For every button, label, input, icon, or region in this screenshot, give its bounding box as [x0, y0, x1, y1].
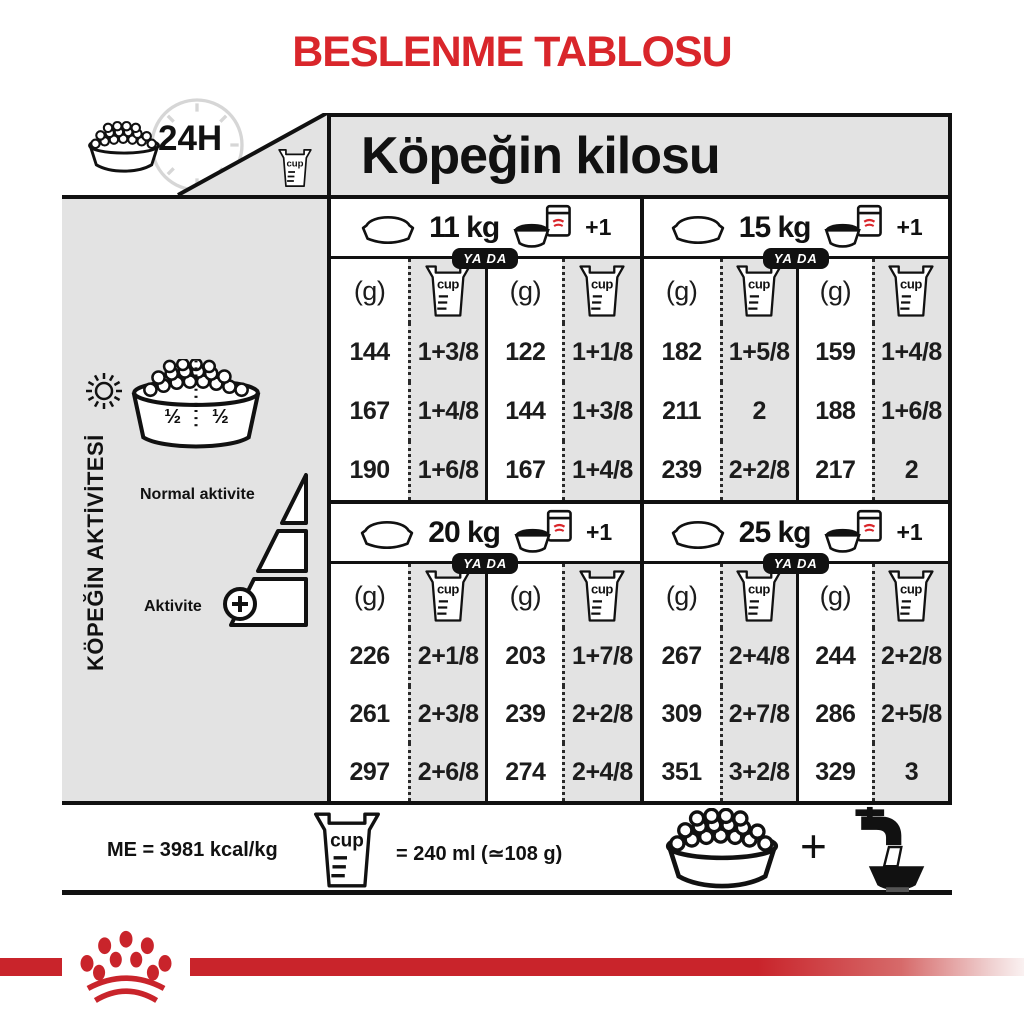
- cup-icon: [425, 264, 471, 318]
- section-header: 11 kg +1 YA DA: [331, 199, 640, 259]
- royal-canin-logo: [62, 925, 190, 1011]
- crown-logo-icon: [70, 929, 182, 1007]
- water-tap-icon: [844, 805, 930, 893]
- feeding-table-page: BESLENME TABLOSU 24H Köpeğin kilosu: [0, 0, 1024, 1024]
- weight-label: 11 kg: [429, 211, 499, 245]
- cup-icon: [736, 569, 782, 623]
- value-cell: 122: [485, 323, 562, 382]
- cup-icon: [278, 145, 312, 191]
- cup-icon: [312, 812, 382, 888]
- gram-unit-label: (g): [644, 564, 720, 628]
- section-body: (g) (g) 267 2+4/8 244 2+2/8 309 2+7/8 28…: [644, 564, 949, 801]
- value-cell: 2+1/8: [408, 628, 485, 686]
- cup-equivalence-text: = 240 ml (≃108 g): [396, 841, 562, 866]
- value-cell: 267: [644, 628, 720, 686]
- value-cell: 2+5/8: [872, 686, 948, 744]
- section-header: 20 kg +1 YA DA: [331, 504, 640, 564]
- plus-one-label: +1: [896, 214, 922, 241]
- gram-unit-label: (g): [331, 259, 408, 323]
- value-cell: 2+4/8: [562, 743, 639, 801]
- or-badge: YA DA: [452, 248, 518, 269]
- cup-header-cell: [562, 564, 639, 628]
- value-cell: 1+5/8: [720, 323, 796, 382]
- value-cell: 203: [485, 628, 562, 686]
- or-badge: YA DA: [452, 553, 518, 574]
- moon-icon: [270, 380, 304, 422]
- cup-header-cell: [872, 259, 948, 323]
- section-header: 25 kg +1 YA DA: [644, 504, 949, 564]
- bowl-pouch-icon: [822, 203, 884, 249]
- plus-one-label: +1: [586, 519, 612, 546]
- cup-header-cell: [872, 564, 948, 628]
- value-cell: 211: [644, 382, 720, 441]
- gram-unit-label: (g): [331, 564, 408, 628]
- weight-header: Köpeğin kilosu: [327, 113, 952, 199]
- half-right-label: ½: [212, 406, 229, 428]
- weight-label: 20 kg: [428, 516, 500, 550]
- value-cell: 1+1/8: [562, 323, 639, 382]
- value-cell: 144: [331, 323, 408, 382]
- gram-unit-label: (g): [644, 259, 720, 323]
- section-20kg: 20 kg +1 YA DA (g) (g) 226 2+1/8 203 1+7…: [331, 500, 640, 801]
- value-cell: 1+6/8: [872, 382, 948, 441]
- value-cell: 159: [796, 323, 872, 382]
- value-cell: 1+3/8: [408, 323, 485, 382]
- sidebar-title: KÖPEĞİN AKTİVİTESİ: [83, 437, 109, 671]
- value-cell: 309: [644, 686, 720, 744]
- value-cell: 3: [872, 743, 948, 801]
- value-cell: 2+6/8: [408, 743, 485, 801]
- section-25kg: 25 kg +1 YA DA (g) (g) 267 2+4/8 244 2+2…: [640, 500, 949, 801]
- metabolizable-energy-text: ME = 3981 kcal/kg: [107, 839, 278, 862]
- plus-sign: +: [800, 819, 827, 873]
- cup-icon: [888, 264, 934, 318]
- activity-label: Aktivite: [144, 598, 202, 616]
- plus-one-label: +1: [585, 214, 611, 241]
- value-cell: 190: [331, 441, 408, 500]
- value-cell: 188: [796, 382, 872, 441]
- value-cell: 2+7/8: [720, 686, 796, 744]
- table-footer: ME = 3981 kcal/kg = 240 ml (≃108 g) +: [62, 805, 952, 895]
- value-cell: 217: [796, 441, 872, 500]
- cup-header-cell: [562, 259, 639, 323]
- activity-sidebar: ½ ½ KÖPEĞİN AKTİVİTESİ Normal aktivite A…: [62, 199, 327, 805]
- cup-icon: [579, 569, 625, 623]
- half-left-label: ½: [164, 406, 181, 428]
- plus-one-label: +1: [896, 519, 922, 546]
- value-cell: 1+7/8: [562, 628, 639, 686]
- page-title: BESLENME TABLOSU: [0, 28, 1024, 77]
- value-cell: 2+4/8: [720, 628, 796, 686]
- table-corner: 24H: [62, 113, 327, 199]
- value-cell: 351: [644, 743, 720, 801]
- value-cell: 261: [331, 686, 408, 744]
- value-cell: 2+2/8: [872, 628, 948, 686]
- activity-level-triangles: [220, 473, 314, 631]
- bowl-icon: [359, 212, 417, 244]
- weight-label: 25 kg: [739, 516, 811, 550]
- value-cell: 2: [720, 382, 796, 441]
- value-cell: 2+3/8: [408, 686, 485, 744]
- section-15kg: 15 kg +1 YA DA (g) (g) 182 1+5/8 159 1+4…: [640, 199, 949, 500]
- value-cell: 286: [796, 686, 872, 744]
- badge-24h: 24H: [158, 119, 222, 159]
- value-cell: 239: [644, 441, 720, 500]
- bowl-icon: [669, 517, 727, 549]
- value-cell: 1+4/8: [872, 323, 948, 382]
- value-cell: 1+4/8: [408, 382, 485, 441]
- section-11kg: 11 kg +1 YA DA (g) (g) 144 1+3/8 122 1+1…: [331, 199, 640, 500]
- value-cell: 2+2/8: [562, 686, 639, 744]
- food-bowl-icon: [652, 808, 792, 892]
- value-cell: 1+6/8: [408, 441, 485, 500]
- bowl-icon: [669, 212, 727, 244]
- bowl-pouch-icon: [511, 203, 573, 249]
- bowl-icon: [358, 517, 416, 549]
- weight-label: 15 kg: [739, 211, 811, 245]
- value-cell: 1+3/8: [562, 382, 639, 441]
- cup-icon: [425, 569, 471, 623]
- cup-icon: [888, 569, 934, 623]
- value-cell: 182: [644, 323, 720, 382]
- cup-icon: [736, 264, 782, 318]
- value-cell: 274: [485, 743, 562, 801]
- section-body: (g) (g) 144 1+3/8 122 1+1/8 167 1+4/8 14…: [331, 259, 640, 500]
- section-body: (g) (g) 182 1+5/8 159 1+4/8 211 2 188 1+…: [644, 259, 949, 500]
- section-body: (g) (g) 226 2+1/8 203 1+7/8 261 2+3/8 23…: [331, 564, 640, 801]
- or-badge: YA DA: [763, 553, 829, 574]
- plus-circle-icon: [225, 589, 255, 619]
- value-cell: 2+2/8: [720, 441, 796, 500]
- value-cell: 297: [331, 743, 408, 801]
- section-header: 15 kg +1 YA DA: [644, 199, 949, 259]
- value-cell: 329: [796, 743, 872, 801]
- value-cell: 167: [485, 441, 562, 500]
- bowl-pouch-icon: [512, 508, 574, 554]
- cup-icon: [579, 264, 625, 318]
- value-cell: 3+2/8: [720, 743, 796, 801]
- ration-grid: 11 kg +1 YA DA (g) (g) 144 1+3/8 122 1+1…: [327, 199, 952, 805]
- half-half-bowl-icon: ½ ½: [120, 359, 272, 463]
- bowl-pouch-icon: [822, 508, 884, 554]
- or-badge: YA DA: [763, 248, 829, 269]
- value-cell: 239: [485, 686, 562, 744]
- feeding-table: 24H Köpeğin kilosu: [62, 113, 952, 895]
- value-cell: 226: [331, 628, 408, 686]
- value-cell: 144: [485, 382, 562, 441]
- value-cell: 244: [796, 628, 872, 686]
- value-cell: 2: [872, 441, 948, 500]
- value-cell: 167: [331, 382, 408, 441]
- food-bowl-icon: [82, 119, 166, 177]
- value-cell: 1+4/8: [562, 441, 639, 500]
